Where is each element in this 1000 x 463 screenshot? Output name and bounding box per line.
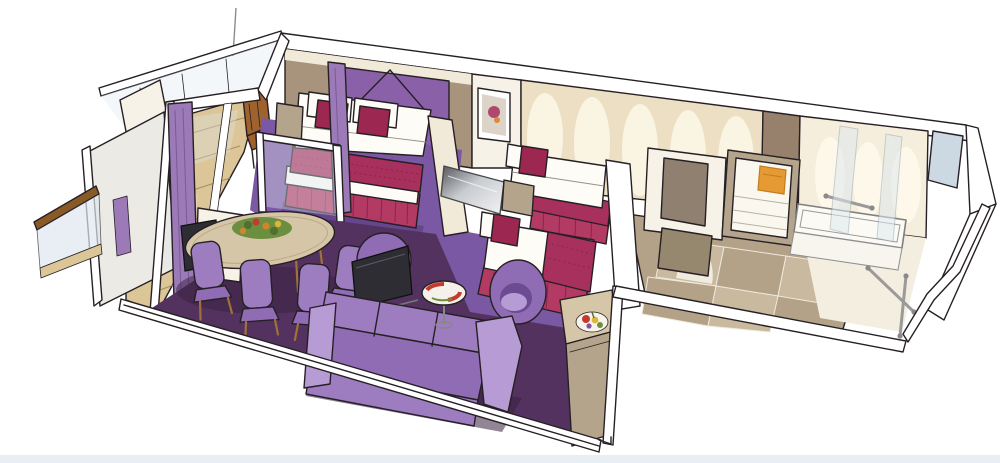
wall-picture (478, 88, 510, 142)
open-shelf-cabinet (722, 150, 800, 246)
orange-towel (758, 166, 786, 194)
right-end-wall (966, 125, 996, 214)
suite-cutaway-illustration (0, 0, 1000, 463)
footer-strip (0, 455, 1000, 463)
illustration-canvas (0, 0, 1000, 463)
corner-window-panel (928, 131, 963, 188)
fruit-plate (576, 312, 608, 332)
dark-floor-tile (658, 228, 712, 276)
tub-chair (490, 260, 546, 324)
twin-nightstand (502, 180, 534, 216)
wardrobe-door (661, 158, 708, 226)
flower-centerpiece (232, 217, 292, 239)
